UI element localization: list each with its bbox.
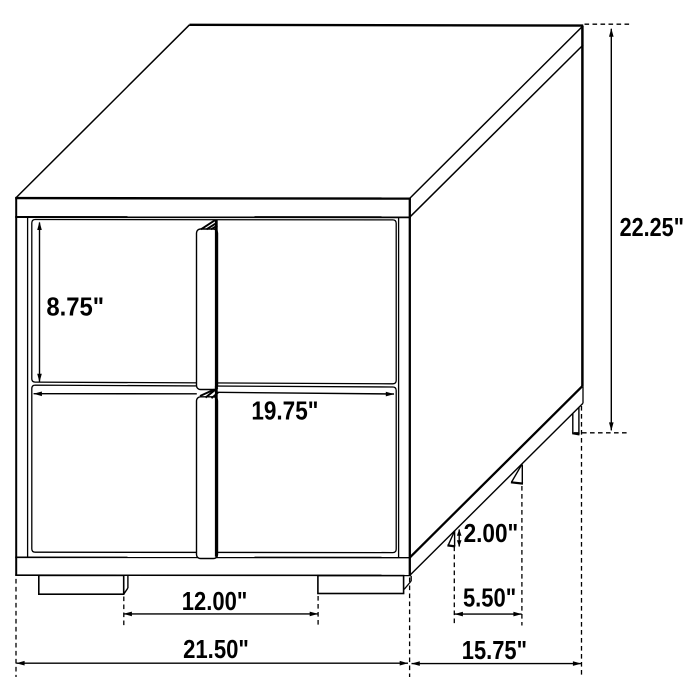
svg-text:5.50": 5.50" — [463, 582, 516, 612]
svg-text:12.00": 12.00" — [182, 586, 248, 616]
svg-text:19.75": 19.75" — [251, 396, 318, 426]
svg-text:22.25": 22.25" — [620, 212, 684, 242]
svg-text:15.75": 15.75" — [462, 635, 527, 665]
svg-text:2.00": 2.00" — [464, 518, 519, 548]
svg-text:21.50": 21.50" — [183, 634, 249, 664]
svg-text:8.75": 8.75" — [46, 291, 104, 321]
